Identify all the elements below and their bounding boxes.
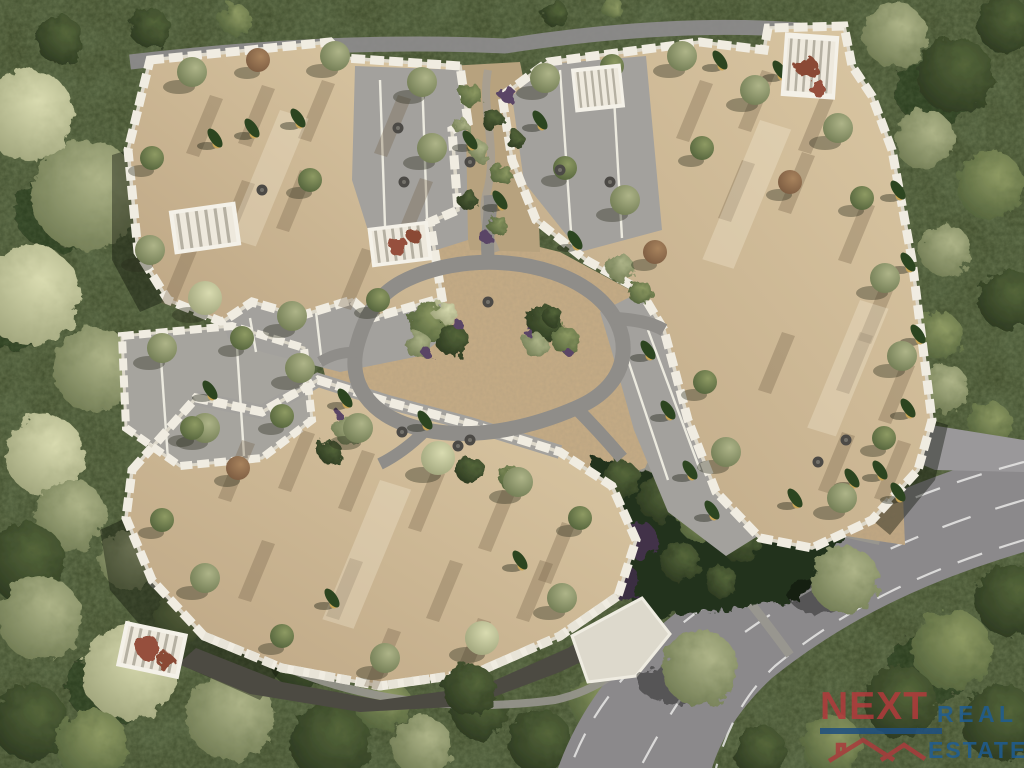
aerial-render xyxy=(0,0,1024,768)
aerial-render-scene: NEXT REAL ESTATE xyxy=(0,0,1024,768)
